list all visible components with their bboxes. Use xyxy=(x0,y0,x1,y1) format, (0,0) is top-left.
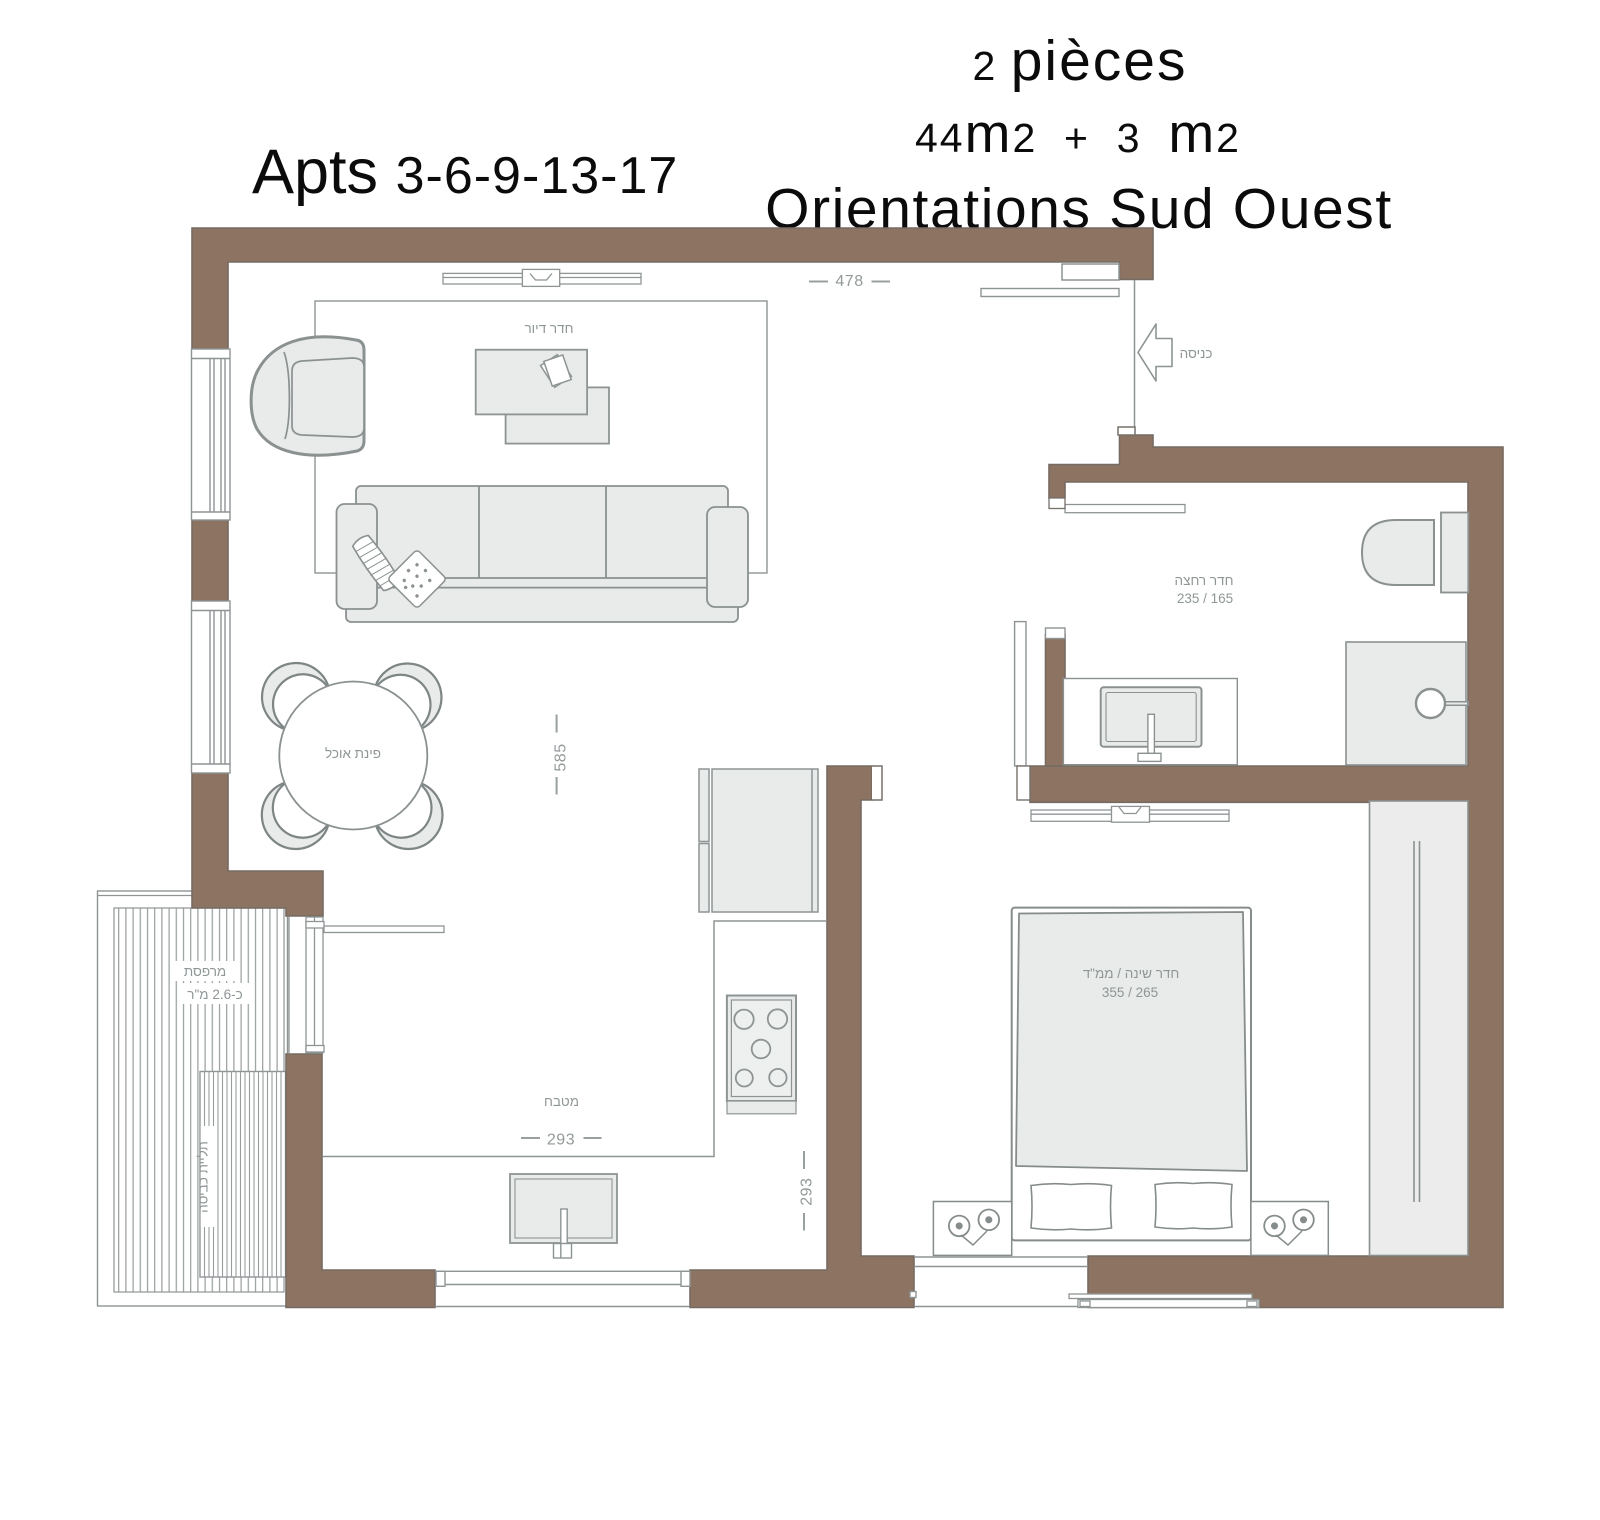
svg-text:235 / 165: 235 / 165 xyxy=(1177,591,1233,606)
svg-text:מרפסת: מרפסת xyxy=(184,964,226,979)
svg-text:פינת אוכל: פינת אוכל xyxy=(325,746,381,761)
svg-text:חדר שינה / ממ"ד: חדר שינה / ממ"ד xyxy=(1083,966,1180,981)
svg-text:כ-2.6 מ"ר: כ-2.6 מ"ר xyxy=(187,987,242,1002)
svg-text:Apts 3-6-9-13-17: Apts 3-6-9-13-17 xyxy=(252,137,678,207)
svg-text:תליית כביסה: תליית כביסה xyxy=(196,1141,211,1213)
svg-text:44m2 + 3 m2: 44m2 + 3 m2 xyxy=(915,102,1241,164)
svg-text:478: 478 xyxy=(835,273,863,290)
svg-text:כניסה: כניסה xyxy=(1180,346,1213,361)
svg-text:2 pièces: 2 pièces xyxy=(973,29,1188,93)
svg-text:355 / 265: 355 / 265 xyxy=(1102,985,1158,1000)
svg-text:293: 293 xyxy=(799,1178,816,1206)
svg-text:חדר רחצה: חדר רחצה xyxy=(1175,573,1234,588)
svg-text:585: 585 xyxy=(553,743,570,771)
svg-text:חדר דיור: חדר דיור xyxy=(524,321,573,336)
svg-text:293: 293 xyxy=(547,1132,575,1149)
svg-text:מטבח: מטבח xyxy=(544,1094,579,1109)
